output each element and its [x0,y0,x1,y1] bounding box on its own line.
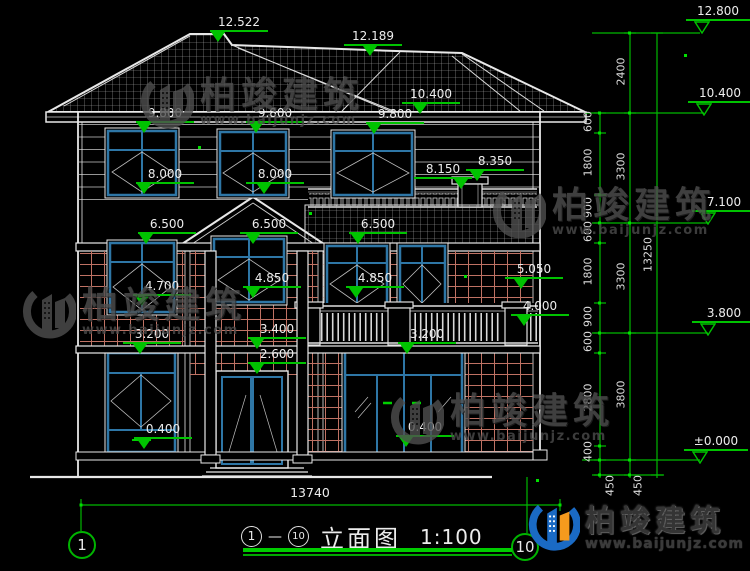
level-marker: 9.800 [366,108,424,134]
level-marker: 12.522 [210,16,268,42]
brand-logo: 柏竣建筑www.baijunjz.com [526,499,744,557]
level-value: 0.400 [396,421,454,434]
level-triangle-icon [400,344,414,354]
level-value: 8.000 [136,168,194,181]
level-marker: 4.700 [133,280,191,306]
level-marker: 9.800 [246,107,304,133]
dim-label: 400 [582,430,595,474]
level-triangle-icon [514,279,528,289]
axis-circle-end: 10 [288,526,309,547]
level-marker: 12.189 [344,30,402,56]
level-line [246,182,304,184]
level-value: 3.200 [123,328,181,341]
level-marker: 2.600 [248,348,306,374]
elevation-flag: 3.800 [692,307,750,336]
level-triangle-icon [137,439,151,449]
level-value: 9.800 [366,108,424,121]
level-value: 8.000 [246,168,304,181]
elevation-flag: ±0.000 [684,435,748,464]
elevation-triangle-icon [694,21,710,34]
level-value: 5.050 [505,263,563,276]
level-triangle-icon [399,437,413,447]
level-value: 3.400 [248,323,306,336]
title-underline [243,548,512,552]
dim-label: 3300 [615,145,628,189]
brand-logo-icon [526,499,580,557]
elevation-value: 12.800 [686,5,750,18]
level-value: 9.800 [246,107,304,120]
level-marker: 6.500 [240,218,298,244]
level-line [402,102,460,104]
level-marker: 4.000 [511,300,569,326]
elevation-value: 7.100 [692,196,750,209]
level-triangle-icon [246,234,260,244]
second-floor-roof-tile-band [305,205,540,243]
level-marker: 4.850 [346,272,404,298]
level-value: 8.350 [466,155,524,168]
level-value: 2.600 [248,348,306,361]
level-value: 9.800 [136,107,194,120]
entrance-steps [202,468,312,476]
level-value: 6.500 [240,218,298,231]
level-triangle-icon [133,344,147,354]
level-value: 10.400 [402,88,460,101]
dim-label-total-height: 13250 [642,233,655,277]
level-marker: 0.400 [396,421,454,447]
level-marker: 8.000 [246,168,304,194]
elevation-value: 10.400 [688,87,750,100]
level-triangle-icon [349,288,363,298]
level-marker: 8.150 [414,163,472,189]
cad-elevation-screenshot: 12.522 12.189 10.400 9.800 9.800 9.800 8… [0,0,750,571]
level-triangle-icon [135,296,149,306]
level-triangle-icon [246,288,260,298]
elevation-triangle-icon [700,323,716,336]
level-triangle-icon [517,316,531,326]
level-marker: 6.500 [138,218,196,244]
level-value: 4.000 [511,300,569,313]
level-triangle-icon [363,46,377,56]
elevation-flag: 12.800 [686,5,750,34]
level-marker: 8.350 [466,155,524,181]
window-3f-right [331,130,415,198]
dim-label-total-width: 13740 [270,485,350,500]
level-triangle-icon [211,32,225,42]
level-value: 4.850 [243,272,301,285]
dim-label: 2800 [582,376,595,420]
level-triangle-icon [351,234,365,244]
level-value: 4.700 [133,280,191,293]
axis-circle-start: 1 [241,526,262,547]
level-value: 3.200 [398,328,456,341]
level-triangle-icon [139,234,153,244]
level-triangle-icon [367,124,381,134]
level-value: 0.400 [134,423,192,436]
level-value: 8.150 [414,163,472,176]
level-triangle-icon [249,123,263,133]
elevation-triangle-icon [692,451,708,464]
brand-url: www.baijunjz.com [585,536,744,552]
elevation-triangle-icon [696,103,712,116]
level-value: 6.500 [349,218,407,231]
elevation-flag: 10.400 [688,87,750,116]
dim-label: 1800 [582,250,595,294]
axis-bubble-left: 1 [68,531,96,559]
dim-label: 3300 [615,255,628,299]
dim-label: 2400 [615,50,628,94]
brand-name: 柏竣建筑 [585,505,744,539]
level-triangle-icon [137,184,151,194]
level-value: 6.500 [138,218,196,231]
level-value: 12.522 [210,16,268,29]
dim-label: 3800 [615,373,628,417]
elevation-triangle-icon [700,212,716,225]
level-marker: 9.800 [136,107,194,133]
level-marker: 4.850 [243,272,301,298]
dim-label: 600 [582,210,595,254]
level-triangle-icon [250,364,264,374]
title-scale: 1:100 [420,525,483,549]
level-triangle-icon [257,184,271,194]
level-marker: 0.400 [134,423,192,449]
level-marker: 3.400 [248,323,306,349]
level-marker: 6.500 [349,218,407,244]
level-line [123,342,181,344]
dim-label: 1800 [582,141,595,185]
level-triangle-icon [137,123,151,133]
dim-label: 600 [582,100,595,144]
title-underline-thin [243,554,512,556]
elevation-value: 3.800 [692,307,750,320]
level-marker: 3.200 [398,328,456,354]
level-marker: 5.050 [505,263,563,289]
elevation-flag: 7.100 [692,196,750,225]
window-2f-right-b [397,243,448,308]
main-roof [46,34,586,122]
level-marker: 3.200 [123,328,181,354]
level-triangle-icon [470,171,484,181]
axis-dash: — [268,529,282,545]
level-value: 4.850 [346,272,404,285]
elevation-value: ±0.000 [684,435,748,448]
dim-label: 600 [582,320,595,364]
level-marker: 8.000 [136,168,194,194]
level-value: 12.189 [344,30,402,43]
